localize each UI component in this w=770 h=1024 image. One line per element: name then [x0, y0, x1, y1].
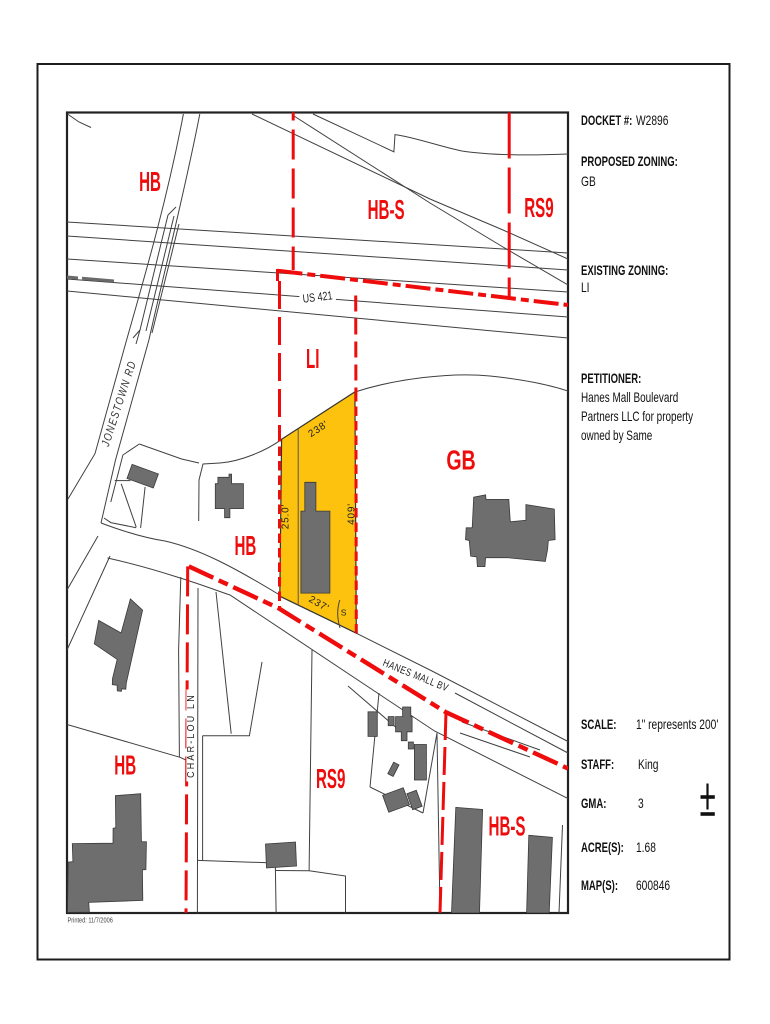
svg-text:409': 409' — [346, 503, 357, 525]
svg-text:HB-S: HB-S — [368, 194, 405, 225]
svg-text:GB: GB — [446, 445, 475, 476]
svg-text:HB: HB — [139, 166, 161, 197]
svg-text:25.0': 25.0' — [281, 504, 292, 529]
svg-text:HB-S: HB-S — [489, 811, 526, 842]
svg-text:S: S — [341, 608, 347, 618]
svg-text:CHAR-LOU LN: CHAR-LOU LN — [185, 693, 197, 778]
svg-text:US 421: US 421 — [302, 289, 333, 306]
svg-text:JONESTOWN RD: JONESTOWN RD — [100, 359, 140, 449]
svg-text:RS9: RS9 — [524, 192, 553, 223]
svg-text:RS9: RS9 — [316, 763, 345, 794]
svg-text:LI: LI — [306, 343, 319, 374]
svg-text:HB: HB — [234, 530, 256, 561]
svg-text:Printed: 11/7/2006: Printed: 11/7/2006 — [68, 917, 114, 925]
svg-text:HB: HB — [114, 750, 136, 781]
